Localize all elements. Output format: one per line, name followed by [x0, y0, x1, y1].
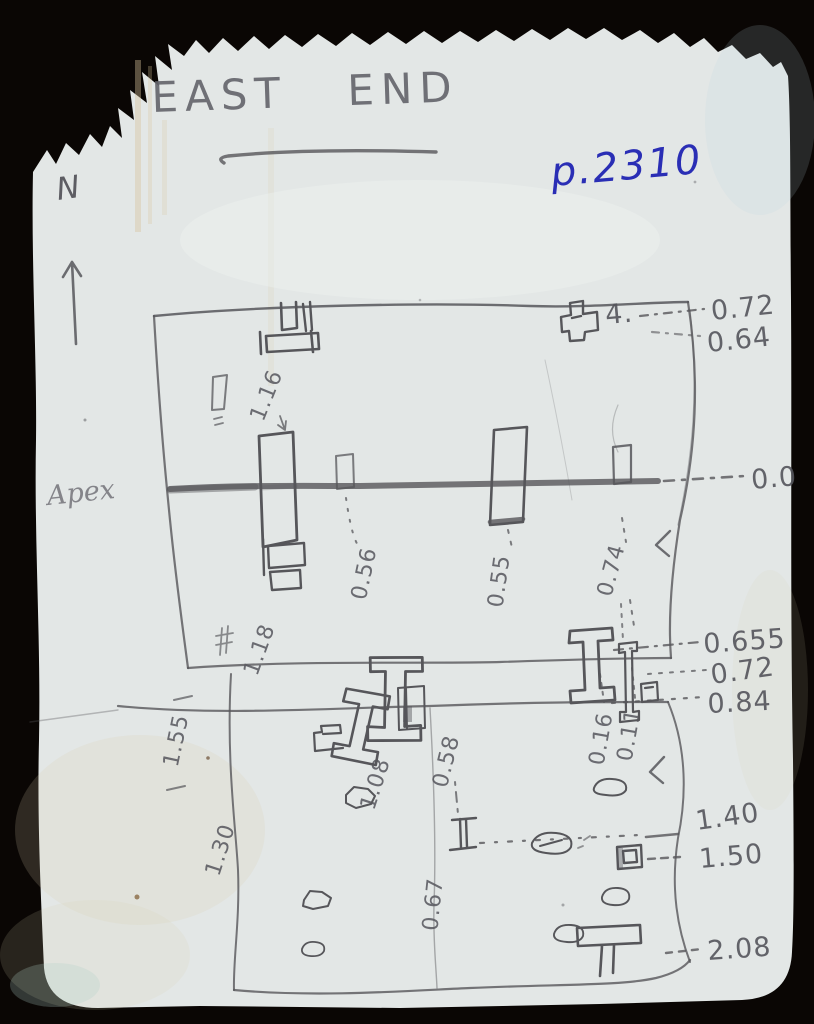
- apex-line-through-stone: [262, 486, 295, 488]
- elevation-value: 0.0: [750, 461, 798, 496]
- north-label: N: [54, 169, 82, 208]
- elevation-value: 0.84: [707, 686, 773, 720]
- sketch-canvas: N EAST END p.2310 Apex: [0, 0, 814, 1024]
- ibeam-shading: [403, 706, 412, 722]
- elevation-value: 1.50: [698, 839, 765, 875]
- elevation-value: 2.08: [706, 932, 772, 967]
- square-shading: [617, 848, 623, 868]
- post-mark-label: 4.: [604, 298, 634, 331]
- tall-stone-east-base: [490, 519, 523, 522]
- apex-line-overdraw: [170, 487, 255, 490]
- scanned-field-sketch: N EAST END p.2310 Apex: [0, 0, 814, 1024]
